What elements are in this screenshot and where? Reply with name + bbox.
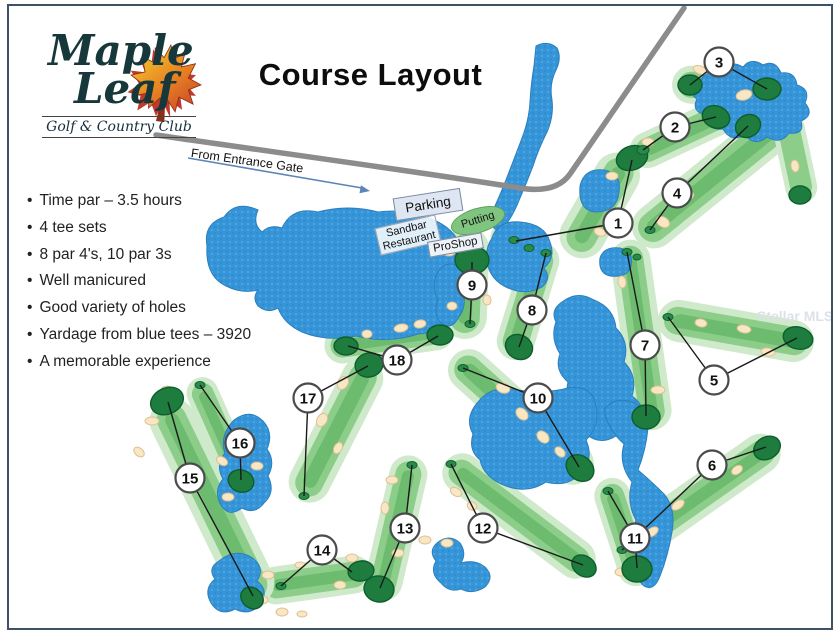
course-fact: •A memorable experience xyxy=(27,349,251,376)
svg-text:13: 13 xyxy=(397,520,414,537)
svg-text:15: 15 xyxy=(182,470,199,487)
svg-text:14: 14 xyxy=(314,542,331,559)
club-logo: Maple Leaf Golf & Country Club xyxy=(36,24,216,144)
course-fact: •4 tee sets xyxy=(27,215,251,242)
svg-text:18: 18 xyxy=(389,352,406,369)
svg-text:7: 7 xyxy=(641,337,649,354)
svg-text:12: 12 xyxy=(475,520,492,537)
course-fact: •Good variety of holes xyxy=(27,295,251,322)
svg-text:8: 8 xyxy=(528,302,536,319)
pond-clubhouse xyxy=(487,222,552,292)
svg-text:3: 3 xyxy=(715,54,723,71)
svg-text:16: 16 xyxy=(232,435,249,452)
course-fact: •Time par – 3.5 hours xyxy=(27,188,251,215)
svg-text:1: 1 xyxy=(614,215,622,232)
course-layout-page: 123456789101112131415161718 Maple Leaf G… xyxy=(0,0,840,640)
svg-text:4: 4 xyxy=(673,185,682,202)
course-fact: •Well manicured xyxy=(27,268,251,295)
svg-text:5: 5 xyxy=(710,372,718,389)
page-title: Course Layout xyxy=(233,57,508,93)
watermark: Stellar MLS xyxy=(757,308,833,324)
svg-text:10: 10 xyxy=(530,390,547,407)
svg-text:17: 17 xyxy=(300,390,317,407)
svg-text:6: 6 xyxy=(708,457,716,474)
pond-hole12-bottom xyxy=(432,538,490,592)
svg-text:9: 9 xyxy=(468,277,476,294)
svg-text:2: 2 xyxy=(671,119,679,136)
course-fact: •Yardage from blue tees – 3920 xyxy=(27,322,251,349)
course-fact: •8 par 4's, 10 par 3s xyxy=(27,242,251,269)
course-facts-list: •Time par – 3.5 hours•4 tee sets•8 par 4… xyxy=(27,188,251,376)
logo-subtitle: Golf & Country Club xyxy=(42,116,196,138)
svg-text:11: 11 xyxy=(627,530,643,547)
logo-word-leaf: Leaf xyxy=(74,64,176,113)
